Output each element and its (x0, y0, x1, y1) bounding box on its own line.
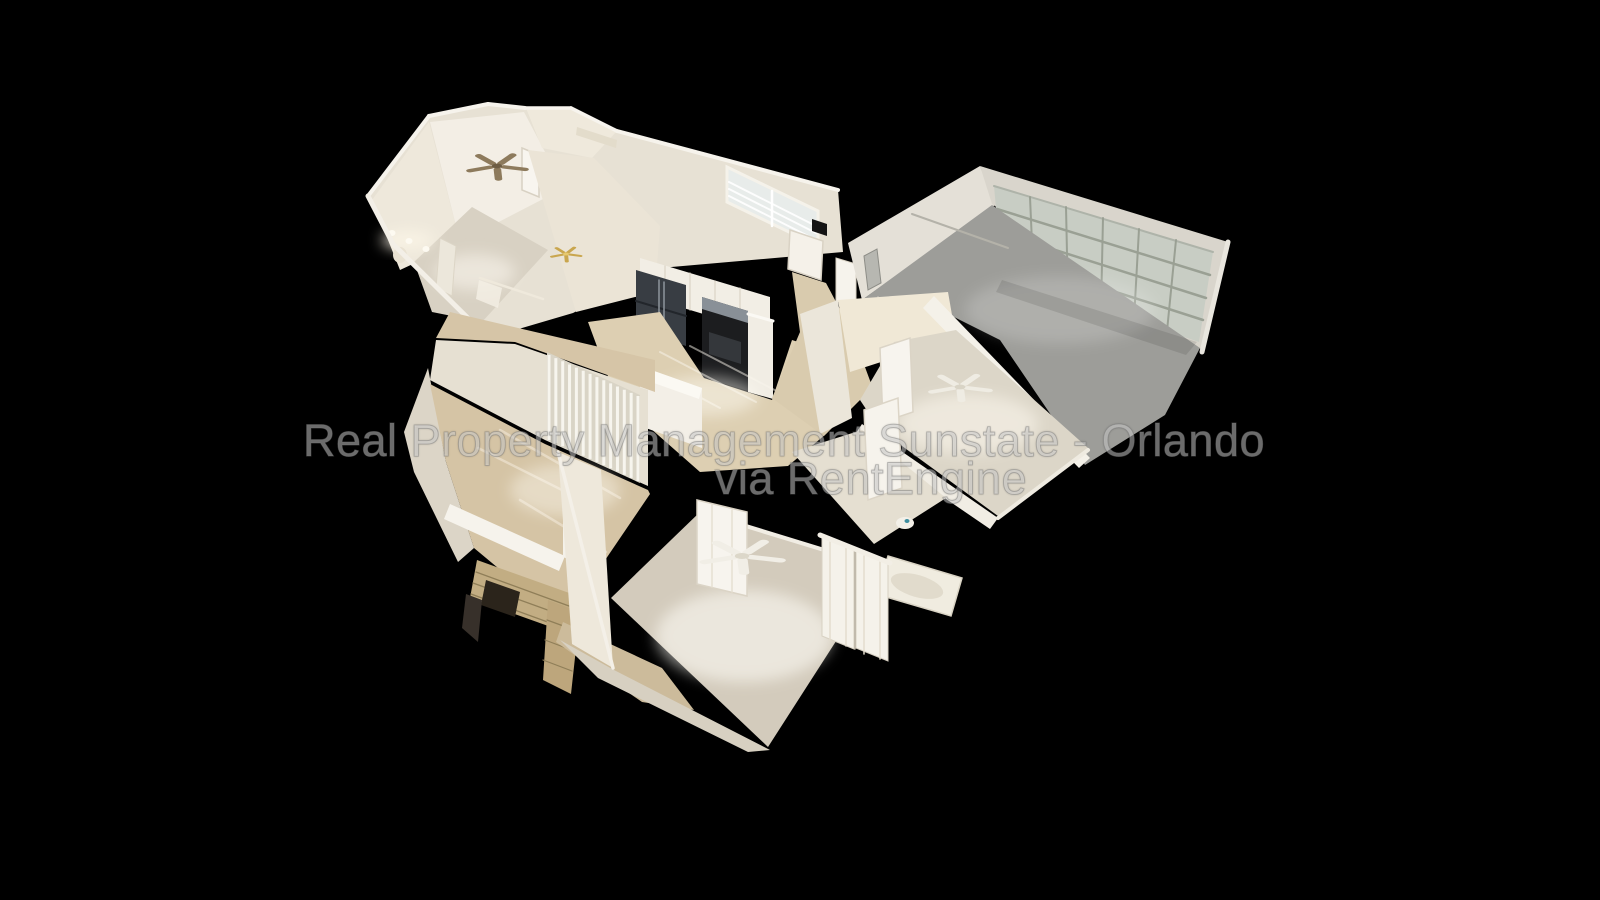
virtual-tour-viewport[interactable]: Real Property Management Sunstate - Orla… (0, 0, 1600, 900)
closet-door-left (822, 537, 854, 649)
bedroom3-carpet-light (656, 590, 832, 682)
bathroom-door (864, 398, 902, 500)
dollhouse-model (0, 0, 1600, 900)
vanity-bulb (406, 238, 413, 244)
closet-door-right (856, 551, 888, 661)
toilet (896, 517, 914, 529)
hearth-shadow (462, 594, 482, 642)
vanity-bulb (423, 246, 430, 252)
bedroom2-carpet-light (898, 394, 1038, 454)
toilet-lid-accent (905, 519, 910, 523)
